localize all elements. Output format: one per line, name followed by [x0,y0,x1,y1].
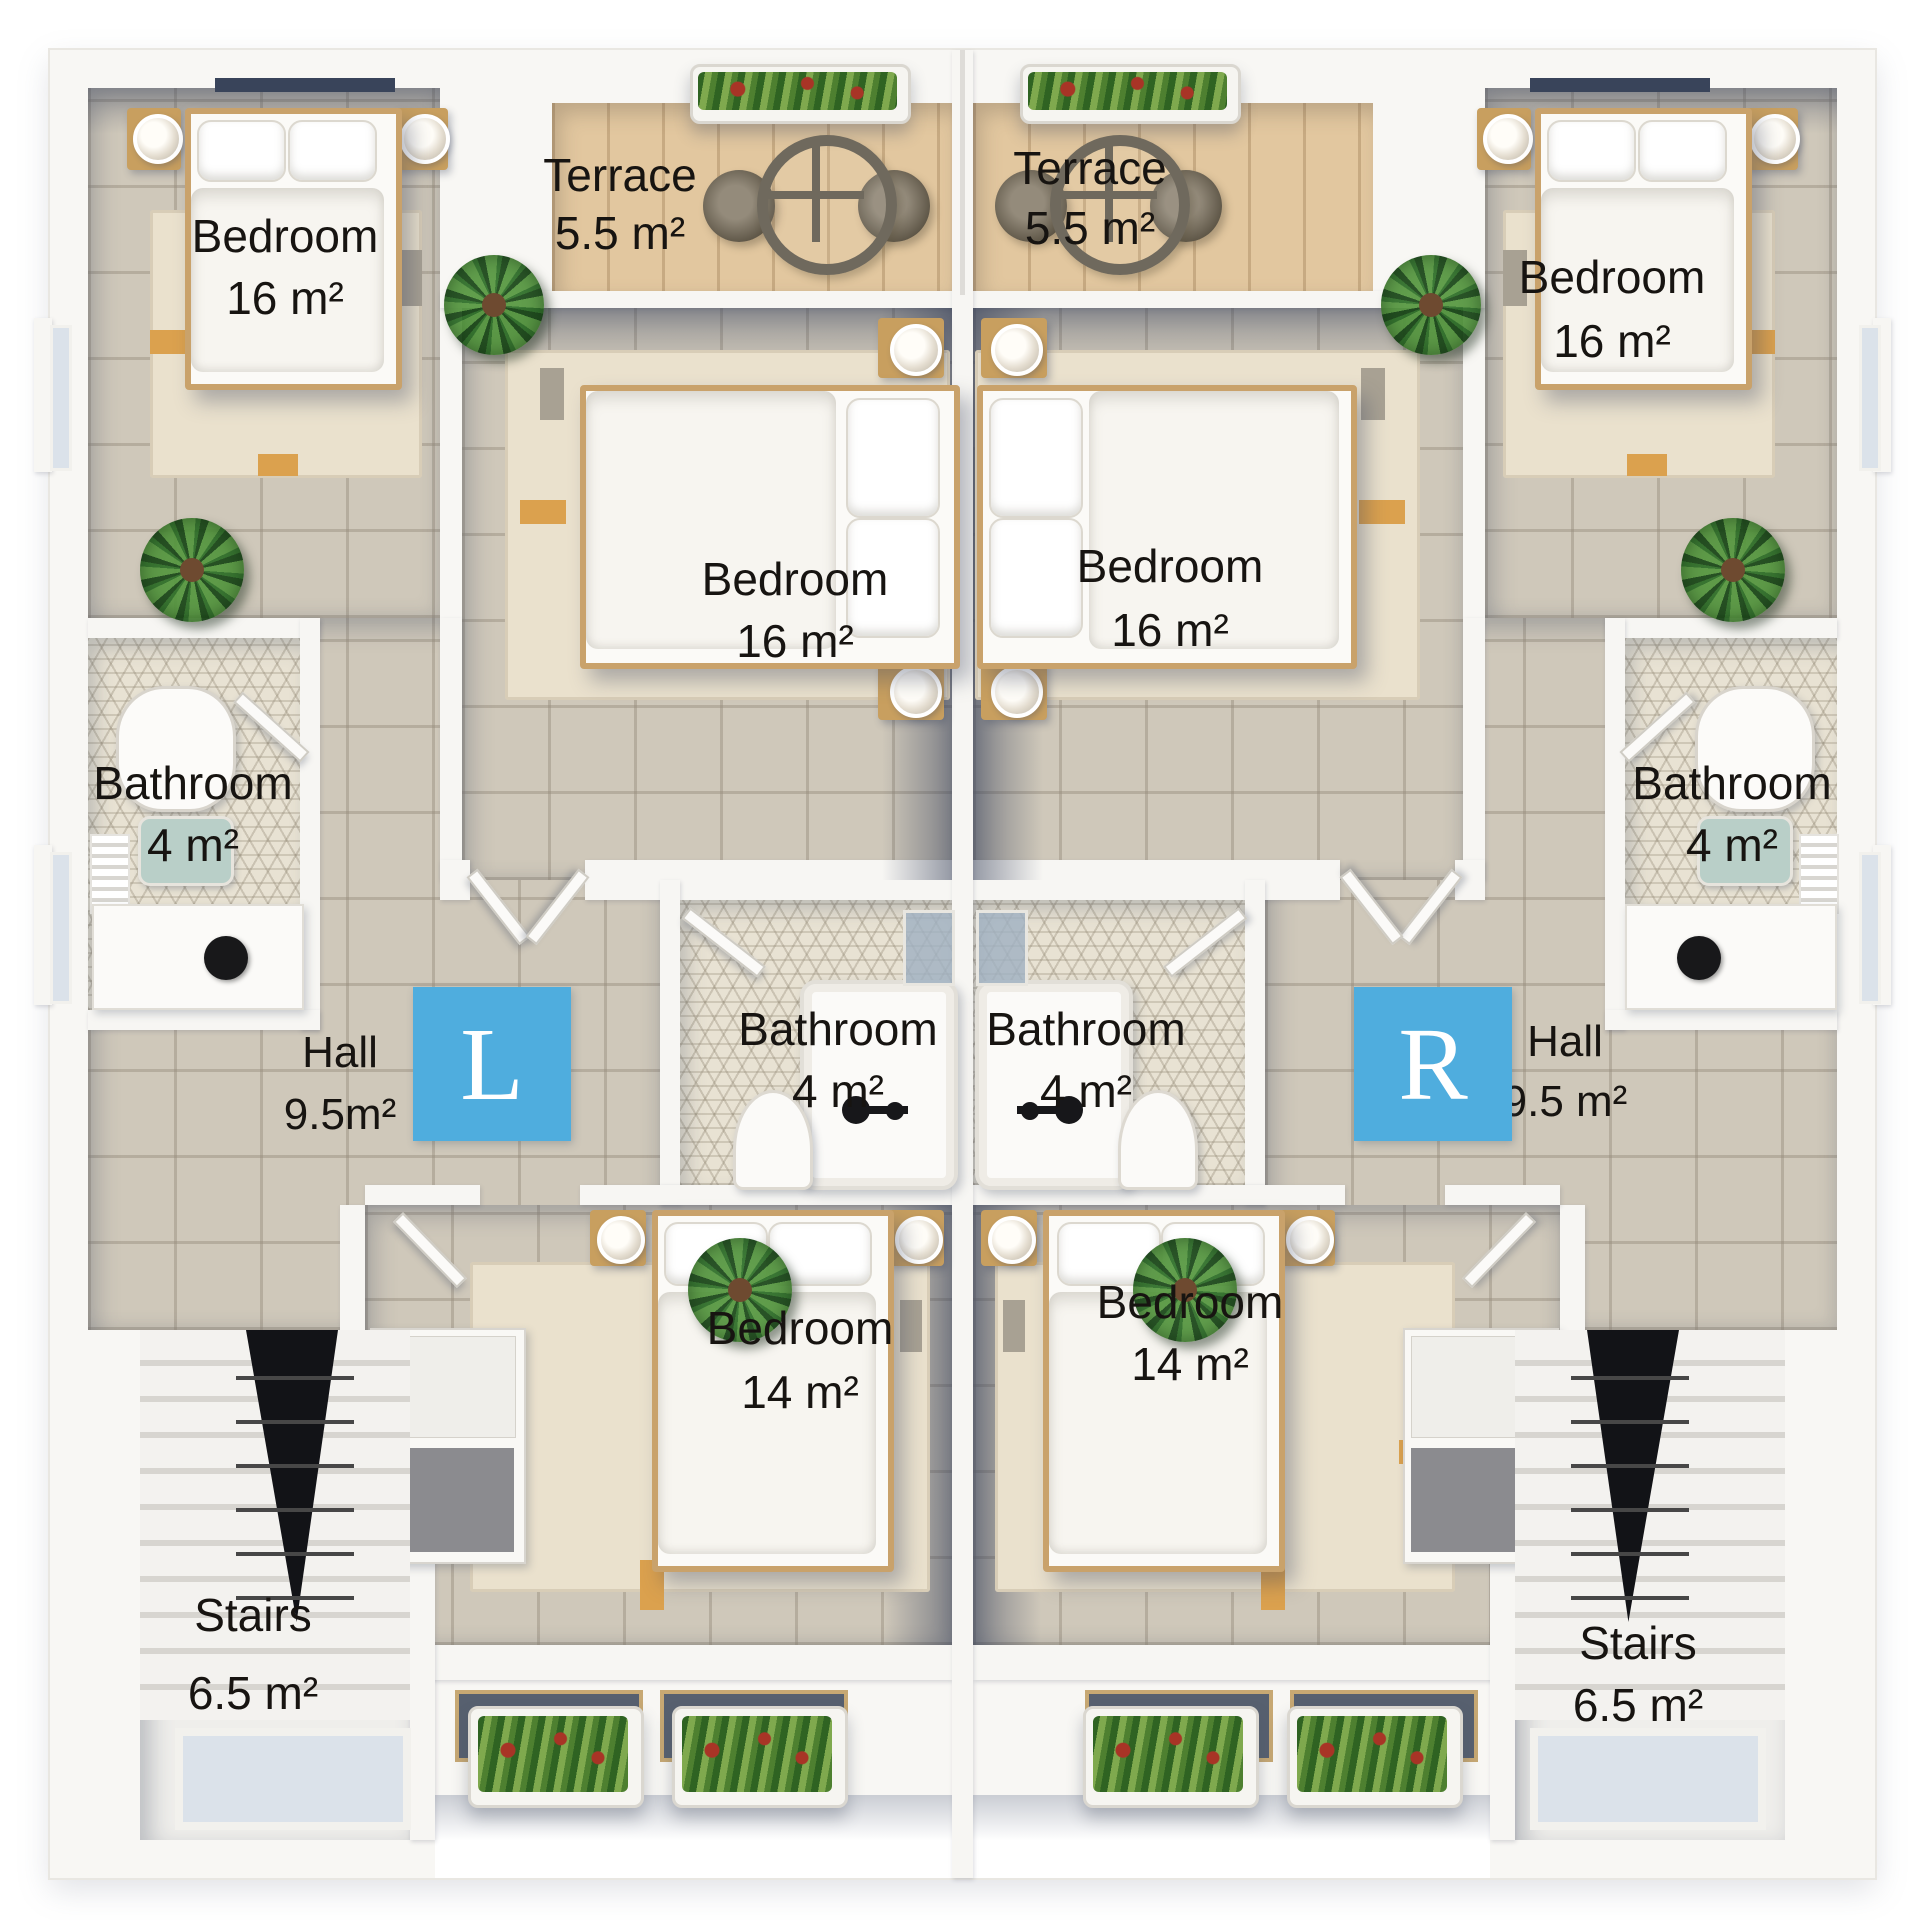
planter-plants [698,72,897,110]
room-area: 4 m² [920,1060,1252,1122]
lamp-icon [1286,1216,1334,1264]
lamp-icon [988,1216,1036,1264]
room-area: 16 m² [630,610,960,672]
room-name: Bedroom [1025,1271,1355,1333]
stair-window [1530,1728,1766,1830]
lamp-icon [1483,114,1533,164]
planter-plants [478,1716,628,1792]
wall [440,860,470,900]
pillow [1638,120,1727,182]
room-name: Terrace [975,138,1205,198]
plant-icon [140,518,244,622]
label-bedroom-bottom-left: Bedroom 14 m² [635,1296,965,1424]
label-terrace-right: Terrace 5.5 m² [975,138,1205,258]
rug-accent [540,368,564,420]
room-name: Bathroom [60,752,326,814]
room-area: 16 m² [120,267,450,329]
rug-accent [1627,454,1667,476]
wall [88,618,320,638]
label-bathroom-side-left: Bathroom 4 m² [60,752,326,876]
room-area: 5.5 m² [480,204,760,262]
table-icon [757,135,897,275]
lamp-icon [133,114,183,164]
label-bedroom-top-right: Bedroom 16 m² [1447,245,1777,373]
room-name: Bedroom [120,205,450,267]
label-stairs-right: Stairs 6.5 m² [1505,1612,1771,1736]
label-bedroom-middle-left: Bedroom 16 m² [630,548,960,672]
label-bathroom-center-right: Bathroom 4 m² [920,998,1252,1122]
planter-plants [1028,72,1227,110]
lamp-icon [991,324,1043,376]
room-area: 6.5 m² [120,1654,386,1732]
plant-icon [1681,518,1785,622]
stair-railing [1571,1336,1689,1602]
window-slit [215,78,395,92]
room-area: 16 m² [1447,309,1777,373]
stair-window [175,1728,411,1830]
rug-accent [520,500,566,524]
room-name: Bedroom [630,548,960,610]
label-terrace-left: Terrace 5.5 m² [480,146,760,262]
window [1859,325,1881,471]
wall [1445,1185,1560,1205]
wall [365,1185,480,1205]
label-bathroom-side-right: Bathroom 4 m² [1599,752,1865,876]
label-bedroom-middle-right: Bedroom 16 m² [1005,534,1335,662]
planter-plants [1297,1716,1447,1792]
wall [1605,618,1837,638]
room-area: 4 m² [60,814,326,876]
lamp-icon [1750,114,1800,164]
window-slit [1530,78,1710,92]
label-bedroom-bottom-right: Bedroom 14 m² [1025,1271,1355,1395]
room-name: Bathroom [1599,752,1865,814]
label-bedroom-top-left: Bedroom 16 m² [120,205,450,329]
rug-accent [1359,500,1405,524]
room-area: 4 m² [1599,814,1865,876]
faucet-icon [204,936,248,980]
lamp-icon [597,1216,645,1264]
vanity-counter [1625,904,1837,1010]
planter-plants [682,1716,832,1792]
room-name: Bedroom [1447,245,1777,309]
rug-accent [1361,368,1385,420]
shower-glass [903,910,955,986]
pillow [288,120,377,182]
planter-plants [1093,1716,1243,1792]
party-wall-seam [960,50,965,295]
window [50,325,72,471]
room-name: Stairs [1505,1612,1771,1674]
room-name: Bedroom [635,1296,965,1360]
room-name: Stairs [120,1576,386,1654]
floor-plan: Bedroom 16 m² Terrace 5.5 m² Bedroom 16 … [0,0,1920,1920]
pillow [846,398,940,518]
label-stairs-left: Stairs 6.5 m² [120,1576,386,1732]
room-area: 14 m² [1025,1333,1355,1395]
wall [440,618,462,880]
lamp-icon [991,666,1043,718]
room-area: 5.5 m² [975,198,1205,258]
table-spoke [812,146,820,242]
rug-accent [258,454,298,476]
pillow [1547,120,1636,182]
room-name: Bathroom [920,998,1252,1060]
pillow [197,120,286,182]
vanity-counter [92,904,304,1010]
shower-glass [976,910,1028,986]
faucet-icon [1677,936,1721,980]
room-name: Terrace [480,146,760,204]
unit-badge-right: R [1354,987,1512,1141]
lamp-icon [890,666,942,718]
room-area: 14 m² [635,1360,965,1424]
room-name: Bedroom [1005,534,1335,598]
lamp-icon [890,324,942,376]
wall [1463,618,1485,880]
lamp-icon [895,1216,943,1264]
room-area: 16 m² [1005,598,1335,662]
lamp-icon [400,114,450,164]
stair-railing [236,1336,354,1602]
room-area: 6.5 m² [1505,1674,1771,1736]
plant-icon [444,255,544,355]
unit-badge-left: L [413,987,571,1141]
party-wall [952,50,973,1878]
rug-accent [1003,1300,1025,1352]
pillow [989,398,1083,518]
